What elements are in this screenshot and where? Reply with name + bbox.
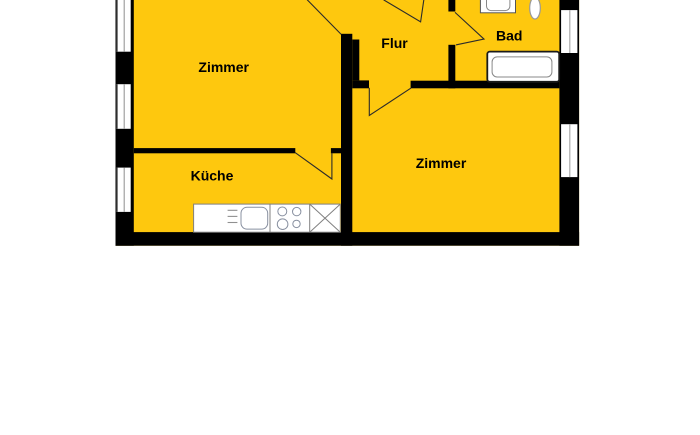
svg-text:Flur: Flur xyxy=(381,35,408,51)
svg-text:Zimmer: Zimmer xyxy=(416,155,467,171)
svg-text:Bad: Bad xyxy=(496,27,522,43)
svg-text:Zimmer: Zimmer xyxy=(198,59,249,75)
svg-text:Küche: Küche xyxy=(191,167,234,183)
